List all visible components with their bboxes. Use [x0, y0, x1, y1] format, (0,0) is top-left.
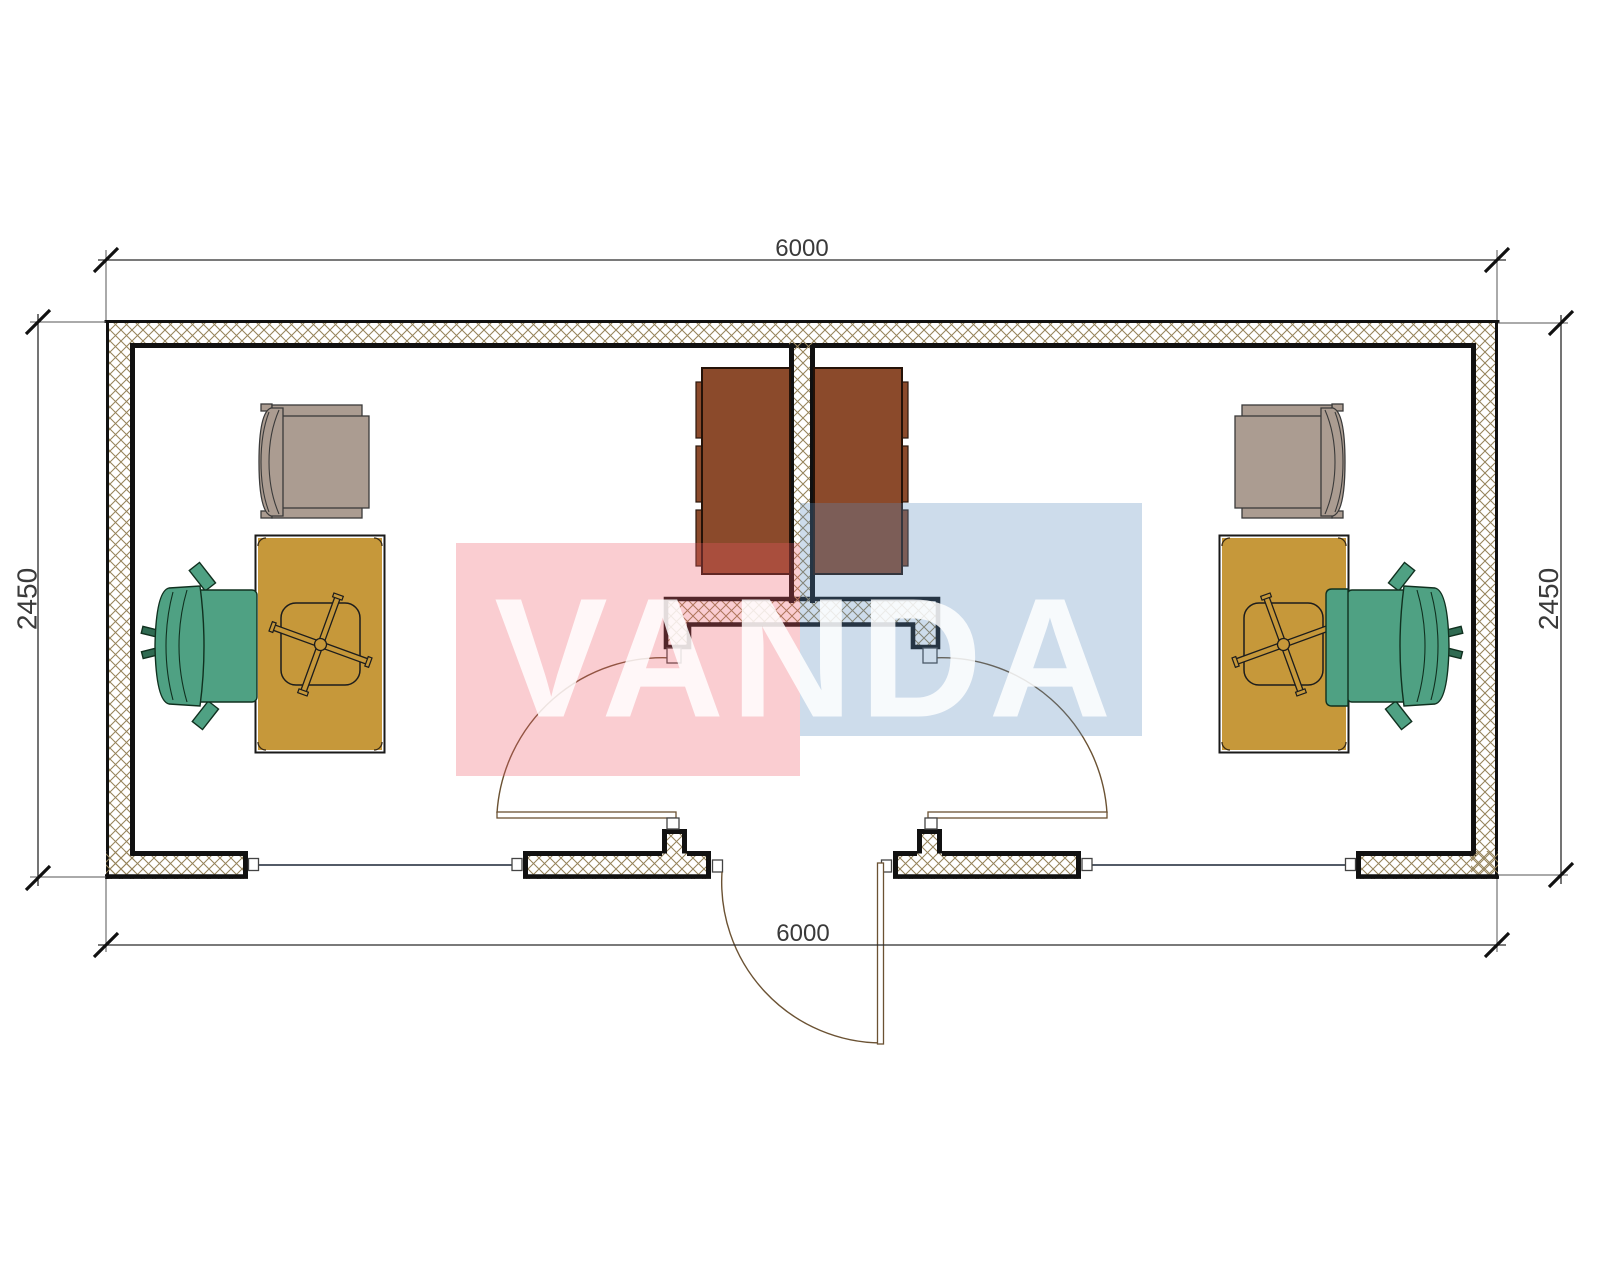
svg-text:VANDA: VANDA — [494, 564, 1117, 754]
svg-text:6000: 6000 — [775, 235, 828, 262]
svg-text:2450: 2450 — [12, 568, 43, 630]
svg-text:2450: 2450 — [1533, 568, 1564, 630]
svg-text:6000: 6000 — [776, 920, 829, 947]
